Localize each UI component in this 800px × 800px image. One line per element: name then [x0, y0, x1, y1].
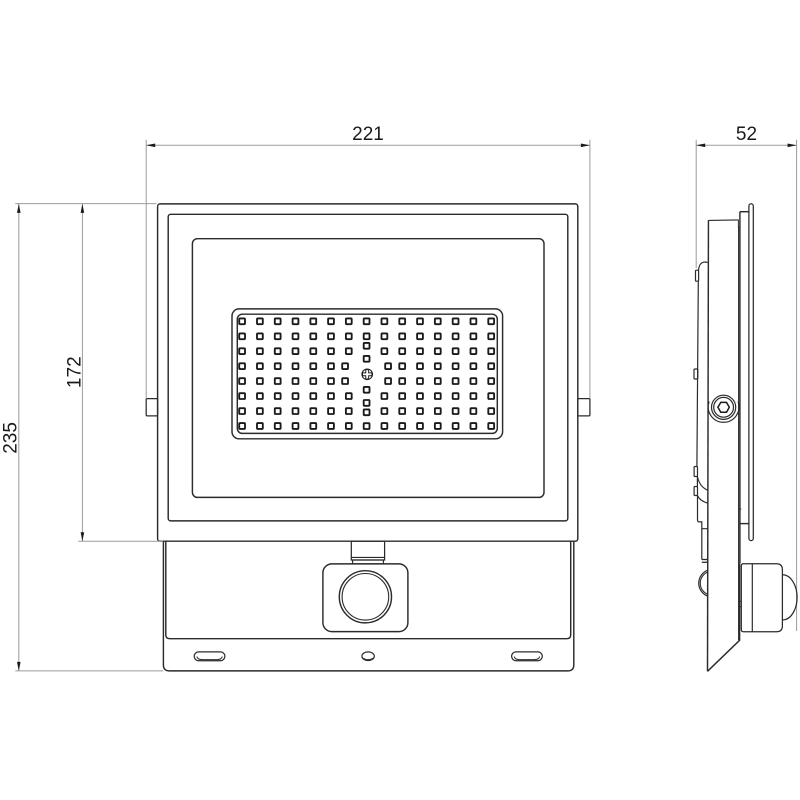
svg-text:52: 52: [736, 124, 757, 145]
svg-text:221: 221: [352, 124, 384, 145]
svg-text:172: 172: [65, 356, 86, 388]
svg-text:235: 235: [1, 422, 22, 454]
